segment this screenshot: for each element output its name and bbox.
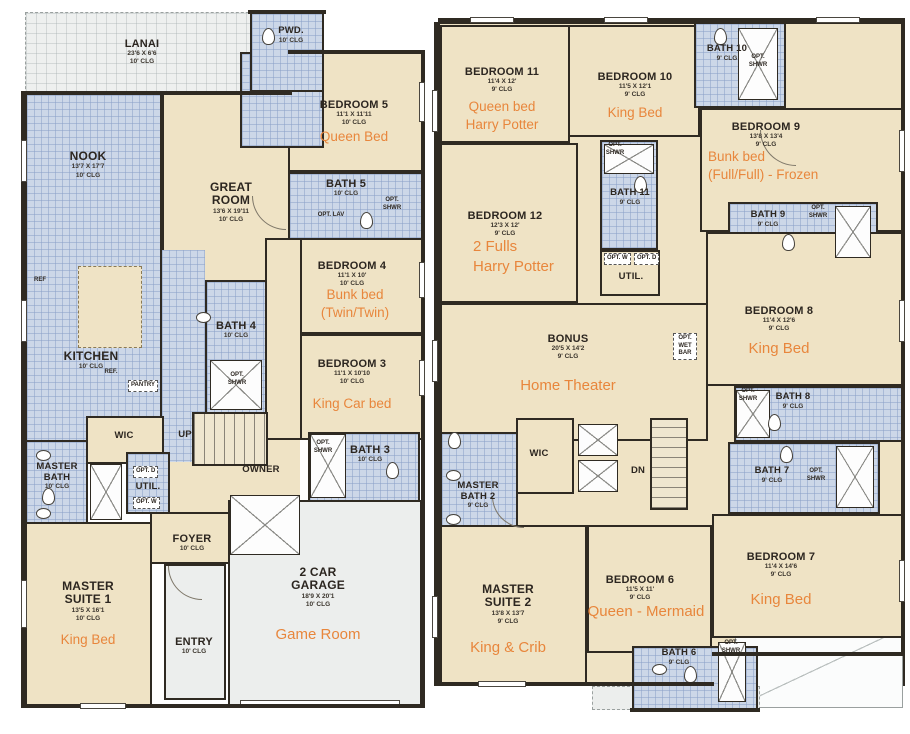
- label-opt-shwr: OPT. SHWR: [736, 388, 760, 403]
- room-note: King Bed: [747, 590, 815, 610]
- room-name: KITCHEN: [64, 350, 119, 363]
- room-name: BEDROOM 5: [320, 99, 388, 111]
- label-bedroom5: BEDROOM 5 11'1 X 11'11 10' CLG Queen Bed: [320, 99, 388, 146]
- label-util: UTIL.: [136, 482, 161, 493]
- label-opt-w: OPT. W: [133, 497, 160, 509]
- label-bath10: BATH 10 9' CLG: [707, 44, 747, 63]
- label-bath6: BATH 6 9' CLG: [662, 648, 697, 667]
- room-dims: 11'5 X 12'1: [598, 83, 673, 91]
- label-bedroom9: BEDROOM 9 13'8 X 13'4 9' CLG: [732, 121, 800, 150]
- room-name: DN: [631, 466, 645, 477]
- label-bath11: BATH 11 9' CLG: [610, 188, 650, 207]
- room-dims: 13'8 X 13'4: [732, 133, 800, 141]
- window: [419, 262, 425, 298]
- label-opt-lav: OPT. LAV: [318, 212, 345, 220]
- room-name: BEDROOM 10: [598, 71, 673, 83]
- label-owner: OWNER: [242, 465, 279, 476]
- room-dims: 11'1 X 10': [318, 272, 386, 280]
- window: [478, 681, 526, 687]
- label-util2: UTIL.: [619, 272, 644, 283]
- room-clg: 10' CLG: [32, 483, 82, 491]
- room-clg: 9' CLG: [598, 91, 673, 99]
- label-opt-shwr: OPT. SHWR: [746, 54, 770, 69]
- room-clg: 9' CLG: [452, 502, 504, 510]
- room-dims: 18'9 X 20'1: [275, 593, 360, 601]
- room-note: (Full/Full) - Frozen: [708, 166, 818, 184]
- room-note: Bunk bed: [321, 286, 389, 304]
- room-note: King Bed: [58, 631, 118, 649]
- closet-icon: [578, 424, 618, 456]
- label-bedroom6-note: Queen - Mermaid: [588, 602, 705, 622]
- label-opt-shwr: OPT. SHWR: [804, 468, 828, 483]
- room-note: (Twin/Twin): [321, 304, 389, 322]
- room-name: ENTRY: [175, 636, 213, 648]
- toilet-icon: [768, 414, 781, 431]
- room-name: WIC: [114, 431, 133, 442]
- label-great-room: GREAT ROOM 13'6 X 19'11 10' CLG: [205, 181, 257, 224]
- label-dn: DN: [631, 466, 645, 477]
- room-dims: 13'5 X 16'1: [58, 607, 118, 615]
- room-name: BEDROOM 9: [732, 121, 800, 133]
- wall: [630, 708, 760, 712]
- label-bedroom9-note: Bunk bed (Full/Full) - Frozen: [708, 148, 818, 184]
- room-dims: 11'1 X 10'10: [313, 370, 392, 378]
- room-dims: 11'5 X 11': [606, 586, 674, 594]
- label-master-bath2: MASTER BATH 2 9' CLG: [452, 481, 504, 510]
- room-clg: 10' CLG: [58, 615, 118, 623]
- room-name: MASTER SUITE 1: [58, 580, 118, 607]
- room-name: WIC: [529, 449, 548, 460]
- shower-icon: [90, 464, 122, 520]
- label-up: UP: [178, 430, 192, 441]
- room-clg: 9' CLG: [745, 325, 813, 333]
- room-name: MASTER BATH 2: [452, 481, 504, 502]
- toilet-icon: [780, 446, 793, 463]
- room-dims: 23'6 X 6'6: [125, 50, 160, 58]
- label-opt-shwr: OPT. SHWR: [603, 142, 627, 157]
- room-name: BEDROOM 7: [747, 551, 815, 563]
- label-pantry: PANTRY: [128, 380, 158, 392]
- room-name: BATH 10: [707, 44, 747, 55]
- label-bedroom6: BEDROOM 6 11'5 X 11' 9' CLG: [606, 574, 674, 603]
- room-dims: 13'8 X 13'7: [470, 610, 546, 618]
- room-clg: 10' CLG: [320, 119, 388, 127]
- room-clg: 10' CLG: [216, 332, 256, 340]
- label-wic2: WIC: [529, 449, 548, 460]
- room-dims: 13'6 X 19'11: [205, 208, 257, 216]
- label-bath9: BATH 9 9' CLG: [751, 210, 786, 229]
- room-note: Harry Potter: [473, 257, 554, 277]
- label-bedroom4-note: Bunk bed (Twin/Twin): [321, 286, 389, 322]
- room-clg: 9' CLG: [465, 86, 539, 94]
- room-name: LANAI: [125, 38, 160, 50]
- room-clg: 9' CLG: [610, 199, 650, 207]
- sink-icon: [36, 450, 51, 461]
- kitchen-island: [78, 266, 142, 348]
- room-name: BATH 9: [751, 210, 786, 221]
- room-name: MASTER BATH: [32, 462, 82, 483]
- room-name: OWNER: [242, 465, 279, 476]
- wall: [25, 91, 292, 95]
- floor-plan-canvas: LANAI 23'6 X 6'6 10' CLG PWD. 10' CLG NO…: [0, 0, 910, 734]
- window: [432, 596, 438, 638]
- label-bedroom4: BEDROOM 4 11'1 X 10' 10' CLG: [318, 260, 386, 289]
- room-dims: 11'4 X 12': [465, 78, 539, 86]
- room-note: 2 Fulls: [473, 237, 554, 257]
- closet-icon: [230, 495, 300, 555]
- window: [604, 17, 648, 23]
- label-bath4: BATH 4 10' CLG: [216, 320, 256, 340]
- room-name: PWD.: [278, 26, 304, 37]
- room-note: Queen bed: [465, 98, 539, 116]
- room-note: King & Crib: [470, 638, 546, 658]
- room-note: Queen Bed: [320, 128, 388, 146]
- room-clg: 10' CLG: [205, 216, 257, 224]
- room-dims: 11'1 X 11'11: [320, 111, 388, 119]
- label-master-bath: MASTER BATH 10' CLG: [32, 462, 82, 491]
- window: [470, 17, 514, 23]
- window: [21, 580, 27, 628]
- shower-icon: [835, 206, 871, 258]
- room-name: BEDROOM 3: [313, 358, 392, 370]
- label-ref: REF: [34, 277, 46, 285]
- room-name: BEDROOM 6: [606, 574, 674, 586]
- porch-roof: [735, 628, 903, 708]
- room-name: 2 CAR GARAGE: [287, 566, 349, 593]
- window: [899, 300, 905, 342]
- room-clg: 10' CLG: [173, 545, 212, 553]
- toilet-icon: [782, 234, 795, 251]
- label-opt-shwr: OPT. SHWR: [225, 372, 249, 387]
- sink-icon: [36, 508, 51, 519]
- room-clg: 9' CLG: [520, 353, 616, 361]
- room-name: GREAT ROOM: [205, 181, 257, 208]
- window: [21, 140, 27, 182]
- room-note: King Bed: [598, 104, 673, 122]
- room-name: BONUS: [520, 333, 616, 345]
- label-bedroom8: BEDROOM 8 11'4 X 12'6 9' CLG King Bed: [745, 305, 813, 359]
- label-opt-shwr: OPT. SHWR: [719, 640, 743, 655]
- label-pwd: PWD. 10' CLG: [278, 26, 304, 45]
- label-nook: NOOK 13'7 X 17'7 10' CLG: [70, 150, 107, 180]
- stairs-down: [650, 418, 688, 510]
- label-master-suite1: MASTER SUITE 1 13'5 X 16'1 10' CLG King …: [58, 580, 118, 649]
- room-name: UP: [178, 430, 192, 441]
- room-clg: 10' CLG: [125, 58, 160, 66]
- room-clg: 9' CLG: [747, 571, 815, 579]
- room-note: Bunk bed: [708, 148, 818, 166]
- label-bedroom3: BEDROOM 3 11'1 X 10'10 10' CLG King Car …: [313, 358, 392, 413]
- room-name: BEDROOM 11: [465, 66, 539, 78]
- label-bath3: BATH 3 10' CLG: [350, 444, 390, 464]
- hall-bedrooms: [265, 238, 302, 440]
- room-clg: 9' CLG: [751, 221, 786, 229]
- toilet-icon: [386, 462, 399, 479]
- room-clg: 9' CLG: [776, 403, 811, 411]
- label-opt-d: OPT. D: [133, 466, 158, 478]
- room-dims: 11'4 X 14'6: [747, 563, 815, 571]
- room-name: BATH 4: [216, 320, 256, 332]
- label-bedroom12: BEDROOM 12 12'3 X 12' 9' CLG: [468, 210, 543, 239]
- label-opt-shwr: OPT. SHWR: [311, 440, 335, 455]
- label-bedroom10: BEDROOM 10 11'5 X 12'1 9' CLG King Bed: [598, 71, 673, 122]
- toilet-icon: [684, 666, 697, 683]
- window: [432, 340, 438, 382]
- room-clg: 9' CLG: [755, 477, 790, 485]
- room-clg: 10' CLG: [275, 601, 360, 609]
- label-bedroom7: BEDROOM 7 11'4 X 14'6 9' CLG King Bed: [747, 551, 815, 610]
- label-ref2: REF.: [104, 369, 117, 377]
- room-name: BATH 8: [776, 392, 811, 403]
- window: [419, 82, 425, 122]
- room-name: BATH 3: [350, 444, 390, 456]
- toilet-icon: [448, 432, 461, 449]
- window: [432, 90, 438, 132]
- label-opt-d: OPT. D: [634, 253, 659, 265]
- label-entry: ENTRY 10' CLG: [175, 636, 213, 656]
- room-name: BEDROOM 12: [468, 210, 543, 222]
- room-note: King Bed: [745, 339, 813, 359]
- room-name: BATH 11: [610, 188, 650, 199]
- room-clg: 10' CLG: [326, 190, 366, 198]
- label-bonus: BONUS 20'5 X 14'2 9' CLG Home Theater: [520, 333, 616, 396]
- room-dims: 13'7 X 17'7: [70, 163, 107, 171]
- sink-icon: [446, 514, 461, 525]
- room-note: Home Theater: [520, 376, 616, 396]
- toilet-icon: [360, 212, 373, 229]
- room-clg: 9' CLG: [470, 618, 546, 626]
- room-note: Harry Potter: [465, 116, 539, 134]
- room-dims: 12'3 X 12': [468, 222, 543, 230]
- label-garage: 2 CAR GARAGE 18'9 X 20'1 10' CLG Game Ro…: [275, 566, 360, 645]
- label-bath7: BATH 7 9' CLG: [755, 466, 790, 485]
- room-clg: 10' CLG: [70, 172, 107, 180]
- room-clg: 10' CLG: [175, 648, 213, 656]
- sink-icon: [196, 312, 211, 323]
- label-wic: WIC: [114, 431, 133, 442]
- label-opt-wet-bar: OPT. WET BAR: [673, 333, 697, 360]
- room-name: UTIL.: [619, 272, 644, 283]
- room-name: BATH 7: [755, 466, 790, 477]
- room-name: BEDROOM 8: [745, 305, 813, 317]
- room-clg: 10' CLG: [313, 378, 392, 386]
- label-master-suite2: MASTER SUITE 2 13'8 X 13'7 9' CLG King &…: [470, 583, 546, 658]
- window: [899, 560, 905, 602]
- label-opt-shwr: OPT. SHWR: [380, 197, 404, 212]
- window: [816, 17, 860, 23]
- room-name: MASTER SUITE 2: [478, 583, 538, 610]
- room-dims: 11'4 X 12'6: [745, 317, 813, 325]
- room-clg: 9' CLG: [707, 55, 747, 63]
- room-name: FOYER: [173, 533, 212, 545]
- room-clg: 9' CLG: [662, 659, 697, 667]
- room-clg: 10' CLG: [350, 456, 390, 464]
- window: [21, 300, 27, 342]
- label-opt-shwr: OPT. SHWR: [806, 205, 830, 220]
- room-note: Game Room: [275, 625, 360, 645]
- room-name: BATH 6: [662, 648, 697, 659]
- label-bedroom12-note: 2 Fulls Harry Potter: [473, 237, 554, 278]
- closet-icon: [578, 460, 618, 492]
- room-note: King Car bed: [313, 395, 392, 413]
- label-foyer: FOYER 10' CLG: [173, 533, 212, 553]
- wall: [248, 10, 326, 14]
- room-name: BATH 5: [326, 178, 366, 190]
- window: [899, 130, 905, 172]
- stairs-up: [192, 412, 268, 466]
- wall: [288, 50, 425, 54]
- label-bedroom11: BEDROOM 11 11'4 X 12' 9' CLG Queen bed H…: [465, 66, 539, 134]
- label-bath5: BATH 5 10' CLG: [326, 178, 366, 198]
- shower-icon: [836, 446, 874, 508]
- room-name: BEDROOM 4: [318, 260, 386, 272]
- room-note: Queen - Mermaid: [588, 602, 705, 622]
- label-opt-w: OPT. W: [604, 253, 631, 265]
- label-bath8: BATH 8 9' CLG: [776, 392, 811, 411]
- room-name: UTIL.: [136, 482, 161, 493]
- toilet-icon: [262, 28, 275, 45]
- room-clg: 10' CLG: [278, 37, 304, 45]
- room-name: NOOK: [70, 150, 107, 163]
- window: [80, 703, 126, 709]
- window: [419, 360, 425, 396]
- room-dims: 20'5 X 14'2: [520, 345, 616, 353]
- label-lanai: LANAI 23'6 X 6'6 10' CLG: [125, 38, 160, 67]
